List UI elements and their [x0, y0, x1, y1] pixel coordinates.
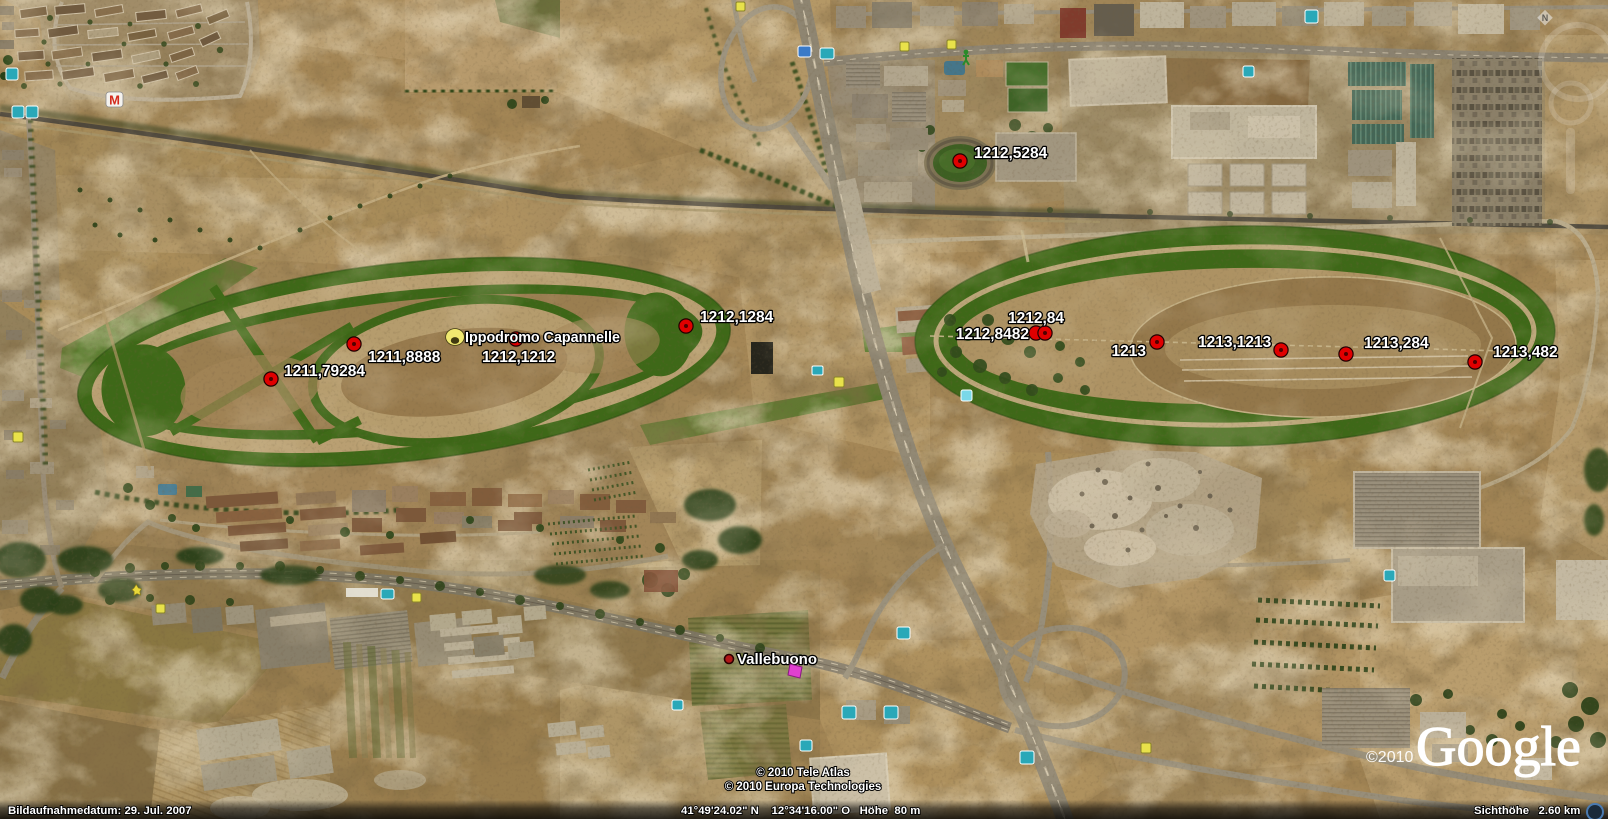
svg-text:Sichthöhe 2.60 km: Sichthöhe 2.60 km: [1474, 805, 1580, 817]
svg-text:1213,284: 1213,284: [1364, 335, 1429, 352]
svg-text:1211,8888: 1211,8888: [368, 349, 441, 366]
svg-text:1212,8482: 1212,8482: [956, 326, 1029, 343]
svg-text:1211,79284: 1211,79284: [284, 363, 365, 380]
svg-text:1212,84: 1212,84: [1008, 310, 1064, 327]
svg-text:©2010: ©2010: [1366, 749, 1413, 766]
svg-text:1213: 1213: [1112, 343, 1147, 360]
svg-text:1212,1212: 1212,1212: [482, 349, 555, 366]
svg-text:1213,482: 1213,482: [1493, 344, 1558, 361]
svg-text:41°49'24.02" N 12°34'16.00": 41°49'24.02" N 12°34'16.00" O Höhe 80 m: [681, 805, 920, 817]
svg-text:Vallebuono: Vallebuono: [737, 651, 817, 668]
svg-text:Bildaufnahmedatum: 29. Jul. 20: Bildaufnahmedatum: 29. Jul. 2007: [8, 805, 192, 817]
svg-text:© 2010 Europa Technologies: © 2010 Europa Technologies: [725, 781, 882, 793]
svg-text:M: M: [109, 93, 120, 108]
svg-text:1212,1284: 1212,1284: [700, 309, 774, 326]
svg-text:1212,5284: 1212,5284: [974, 145, 1048, 162]
svg-text:© 2010 Tele Atlas: © 2010 Tele Atlas: [756, 767, 850, 779]
svg-text:Ippodromo Capannelle: Ippodromo Capannelle: [465, 330, 620, 346]
svg-text:1213,1213: 1213,1213: [1198, 334, 1272, 351]
svg-text:N: N: [1542, 13, 1549, 23]
svg-text:Google: Google: [1416, 716, 1581, 778]
